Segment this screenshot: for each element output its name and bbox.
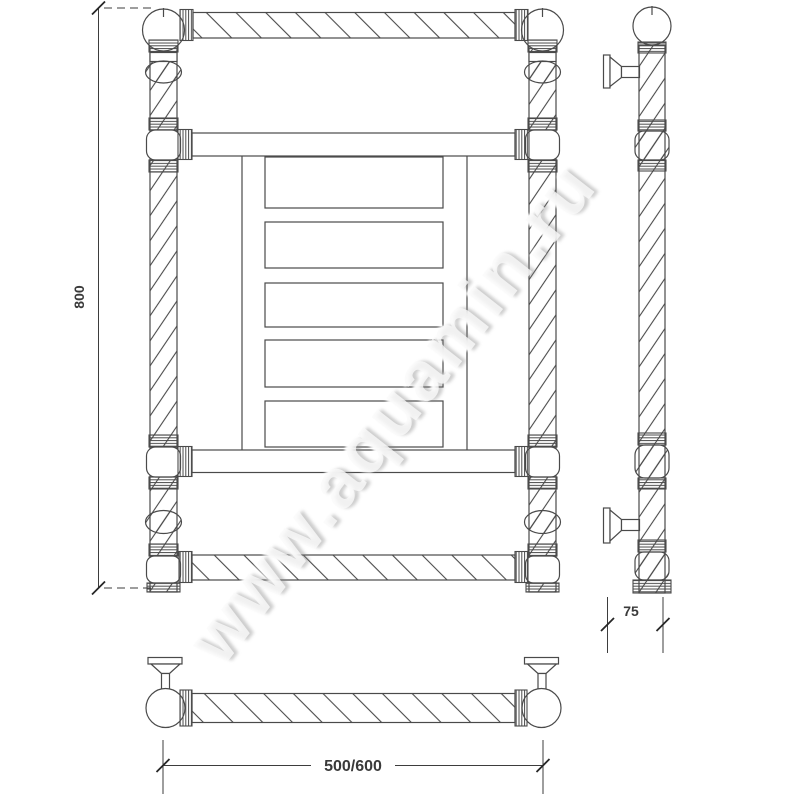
panel-slat	[265, 283, 443, 327]
dimension-height-800: 800	[71, 2, 154, 595]
collar	[180, 10, 193, 41]
node	[635, 552, 669, 580]
end-ball	[522, 689, 561, 728]
collar	[528, 118, 557, 130]
collar	[515, 552, 528, 583]
collar	[149, 435, 178, 447]
collar	[528, 435, 557, 447]
center-panel	[242, 156, 467, 450]
collar	[528, 40, 557, 52]
collar	[515, 130, 529, 160]
panel-slat	[265, 340, 443, 387]
top-rail	[180, 10, 528, 41]
foot-plate	[148, 658, 182, 665]
panel-slat	[265, 157, 443, 208]
base-collar	[633, 580, 671, 593]
collar	[638, 160, 666, 171]
rope-bar	[193, 13, 515, 39]
foot-cone	[151, 664, 180, 674]
base-collar	[147, 583, 180, 592]
front-right-post	[522, 8, 564, 592]
tee-node	[147, 447, 181, 477]
end-ball	[146, 689, 185, 728]
rope-bar	[192, 694, 515, 723]
mount-foot-right	[525, 658, 559, 691]
foot-plate	[525, 658, 559, 665]
panel-slat	[265, 401, 443, 447]
foot-cone	[528, 664, 557, 674]
collar	[638, 478, 666, 489]
collar	[638, 42, 666, 53]
height-dimension-label: 800	[71, 285, 87, 309]
collar	[149, 160, 178, 172]
collar	[149, 544, 178, 556]
bracket-cone	[610, 57, 622, 87]
plain-bar	[192, 450, 515, 473]
plain-bar	[192, 133, 515, 156]
ball-joint	[146, 61, 182, 83]
depth-dimension-label: 75	[623, 603, 639, 619]
base-collar	[526, 583, 559, 592]
technical-drawing-page: 800 75 500/600 www.aquamin.ru	[0, 0, 800, 800]
wall-bracket-bottom	[604, 508, 640, 543]
ball-joint	[146, 511, 182, 534]
dimension-depth-75: 75	[601, 597, 670, 653]
collar	[515, 10, 528, 41]
rope-bar	[192, 555, 515, 580]
front-left-post	[143, 8, 185, 592]
bracket-stem	[622, 67, 640, 78]
bracket-stem	[622, 520, 640, 531]
ball-joint	[525, 61, 561, 83]
tee-node	[526, 556, 560, 583]
bracket-plate	[604, 55, 611, 88]
collar	[528, 477, 557, 489]
side-post	[633, 6, 671, 593]
collar	[638, 433, 666, 445]
wall-bracket-top	[604, 55, 640, 88]
collar	[178, 447, 192, 477]
collar	[178, 130, 192, 160]
side-view	[604, 6, 672, 593]
collar	[180, 690, 192, 726]
width-dimension-label: 500/600	[324, 758, 382, 775]
collar	[515, 690, 527, 726]
tee-node	[147, 556, 181, 583]
node	[635, 445, 669, 478]
dimension-width-500-600: 500/600	[157, 740, 550, 794]
collar	[528, 160, 557, 172]
mount-foot-left	[148, 658, 182, 691]
collar	[149, 118, 178, 130]
upper-rail	[178, 130, 529, 160]
bracket-plate	[604, 508, 611, 543]
tee-node	[147, 130, 181, 160]
node	[635, 131, 669, 160]
towel-rail-drawing: 800 75 500/600	[0, 0, 800, 800]
panel-slat	[265, 222, 443, 268]
collar	[179, 552, 192, 583]
ball-joint	[525, 511, 561, 534]
collar	[515, 447, 529, 477]
collar	[149, 40, 178, 52]
lower-rail	[178, 447, 529, 477]
collar	[149, 477, 178, 489]
bottom-view	[146, 658, 561, 728]
bottom-rail	[179, 552, 528, 583]
front-view	[143, 8, 564, 592]
collar	[638, 540, 666, 552]
bracket-cone	[610, 510, 622, 541]
post-joint	[150, 53, 177, 62]
tee-node	[526, 447, 560, 477]
collar	[528, 544, 557, 556]
collar	[638, 120, 666, 131]
tee-node	[526, 130, 560, 160]
post-joint	[529, 53, 556, 62]
